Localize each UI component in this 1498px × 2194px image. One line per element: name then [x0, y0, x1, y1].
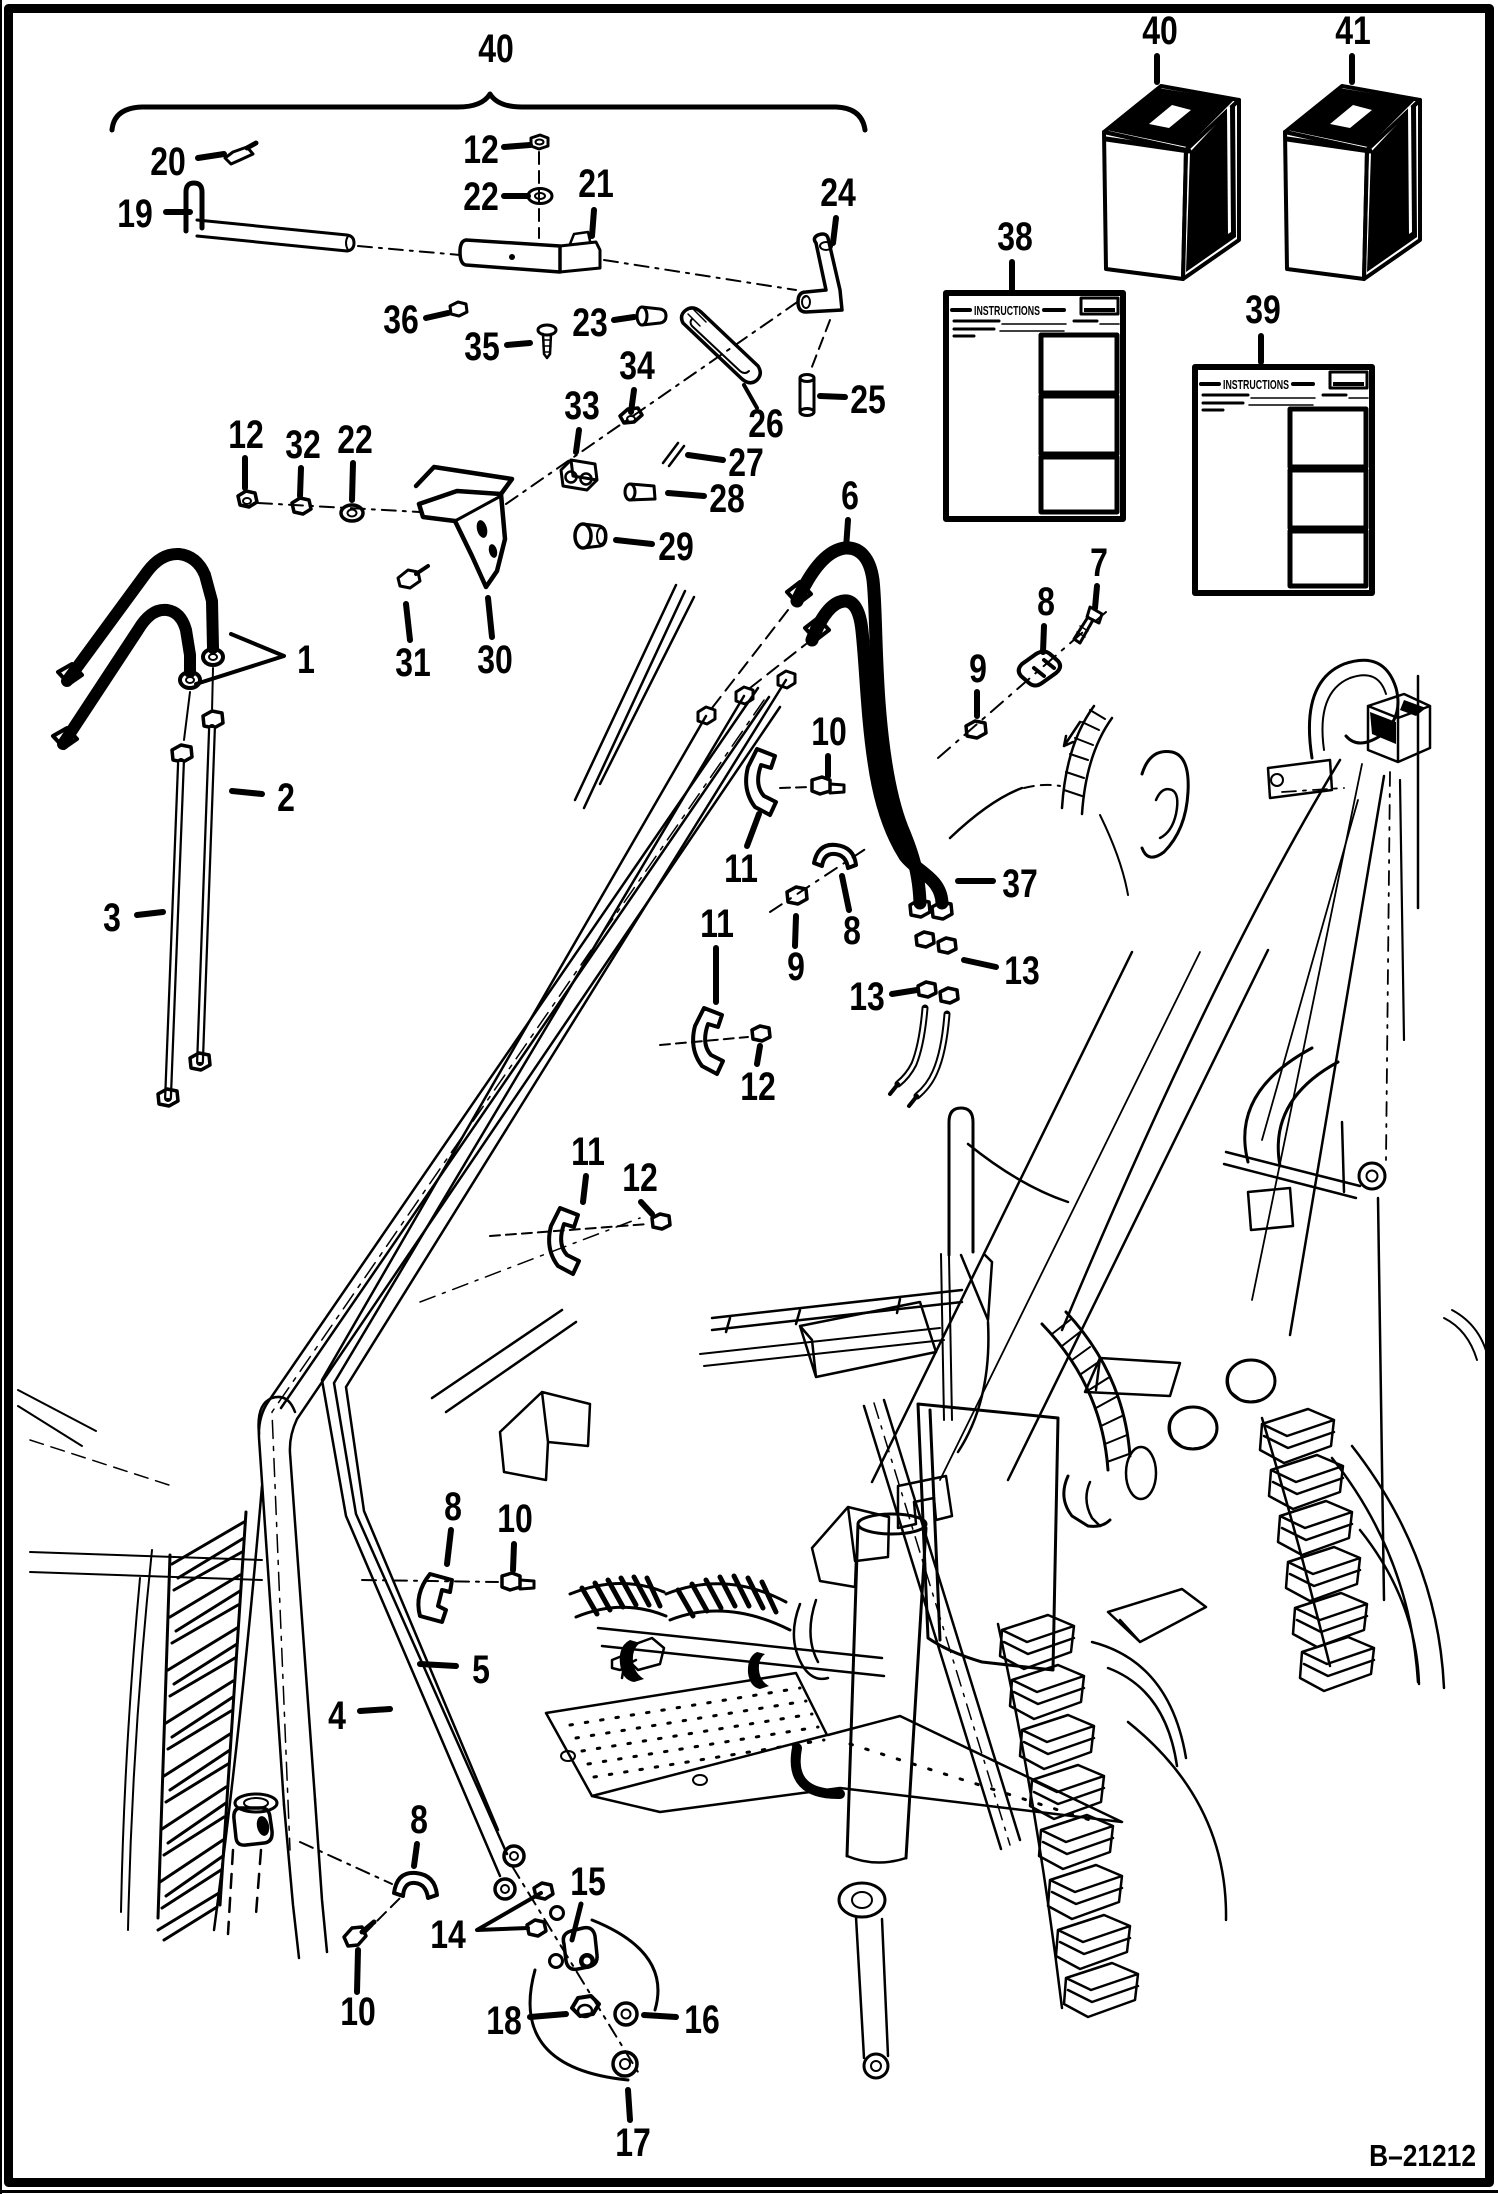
svg-text:8: 8 — [843, 908, 861, 953]
svg-text:13: 13 — [1004, 948, 1040, 993]
svg-text:32: 32 — [285, 422, 321, 467]
svg-text:9: 9 — [969, 646, 987, 691]
svg-text:INSTRUCTIONS: INSTRUCTIONS — [974, 303, 1040, 318]
svg-text:18: 18 — [486, 1998, 522, 2043]
svg-text:6: 6 — [841, 473, 859, 518]
svg-text:36: 36 — [383, 297, 419, 342]
svg-text:30: 30 — [477, 637, 513, 682]
svg-text:5: 5 — [472, 1647, 490, 1692]
svg-text:40: 40 — [478, 26, 514, 71]
svg-text:22: 22 — [337, 417, 373, 462]
svg-text:11: 11 — [700, 901, 734, 946]
svg-text:14: 14 — [430, 1912, 466, 1957]
svg-text:38: 38 — [997, 214, 1033, 259]
svg-text:11: 11 — [571, 1129, 605, 1174]
svg-text:10: 10 — [340, 1989, 376, 2034]
svg-text:31: 31 — [395, 640, 431, 685]
svg-text:B–21212: B–21212 — [1369, 2139, 1476, 2173]
svg-text:3: 3 — [103, 895, 121, 940]
svg-text:22: 22 — [463, 174, 499, 219]
svg-text:12: 12 — [463, 127, 499, 172]
svg-text:35: 35 — [464, 324, 500, 369]
svg-text:12: 12 — [622, 1155, 658, 1200]
svg-text:29: 29 — [658, 524, 694, 569]
svg-text:20: 20 — [150, 139, 186, 184]
svg-text:7: 7 — [1090, 540, 1108, 585]
svg-text:40: 40 — [1142, 8, 1178, 53]
svg-text:4: 4 — [328, 1693, 346, 1738]
svg-text:12: 12 — [740, 1064, 776, 1109]
svg-text:15: 15 — [570, 1859, 606, 1904]
svg-text:8: 8 — [1037, 579, 1055, 624]
svg-text:16: 16 — [684, 1997, 720, 2042]
svg-text:24: 24 — [820, 170, 856, 215]
svg-text:21: 21 — [578, 161, 614, 206]
svg-text:19: 19 — [117, 191, 153, 236]
svg-text:25: 25 — [850, 377, 886, 422]
svg-text:41: 41 — [1335, 8, 1371, 53]
svg-text:11: 11 — [724, 846, 758, 891]
svg-text:2: 2 — [277, 775, 295, 820]
svg-text:12: 12 — [228, 412, 264, 457]
svg-text:10: 10 — [497, 1496, 533, 1541]
svg-text:13: 13 — [849, 974, 885, 1019]
svg-text:39: 39 — [1245, 287, 1281, 332]
svg-text:37: 37 — [1002, 861, 1038, 906]
svg-text:9: 9 — [787, 944, 805, 989]
svg-text:17: 17 — [615, 2120, 651, 2165]
svg-text:10: 10 — [811, 709, 847, 754]
svg-text:8: 8 — [444, 1484, 462, 1529]
svg-text:8: 8 — [410, 1797, 428, 1842]
svg-text:1: 1 — [297, 637, 315, 682]
svg-text:33: 33 — [564, 383, 600, 428]
svg-text:23: 23 — [572, 300, 608, 345]
svg-text:34: 34 — [619, 343, 655, 388]
svg-text:28: 28 — [709, 476, 745, 521]
